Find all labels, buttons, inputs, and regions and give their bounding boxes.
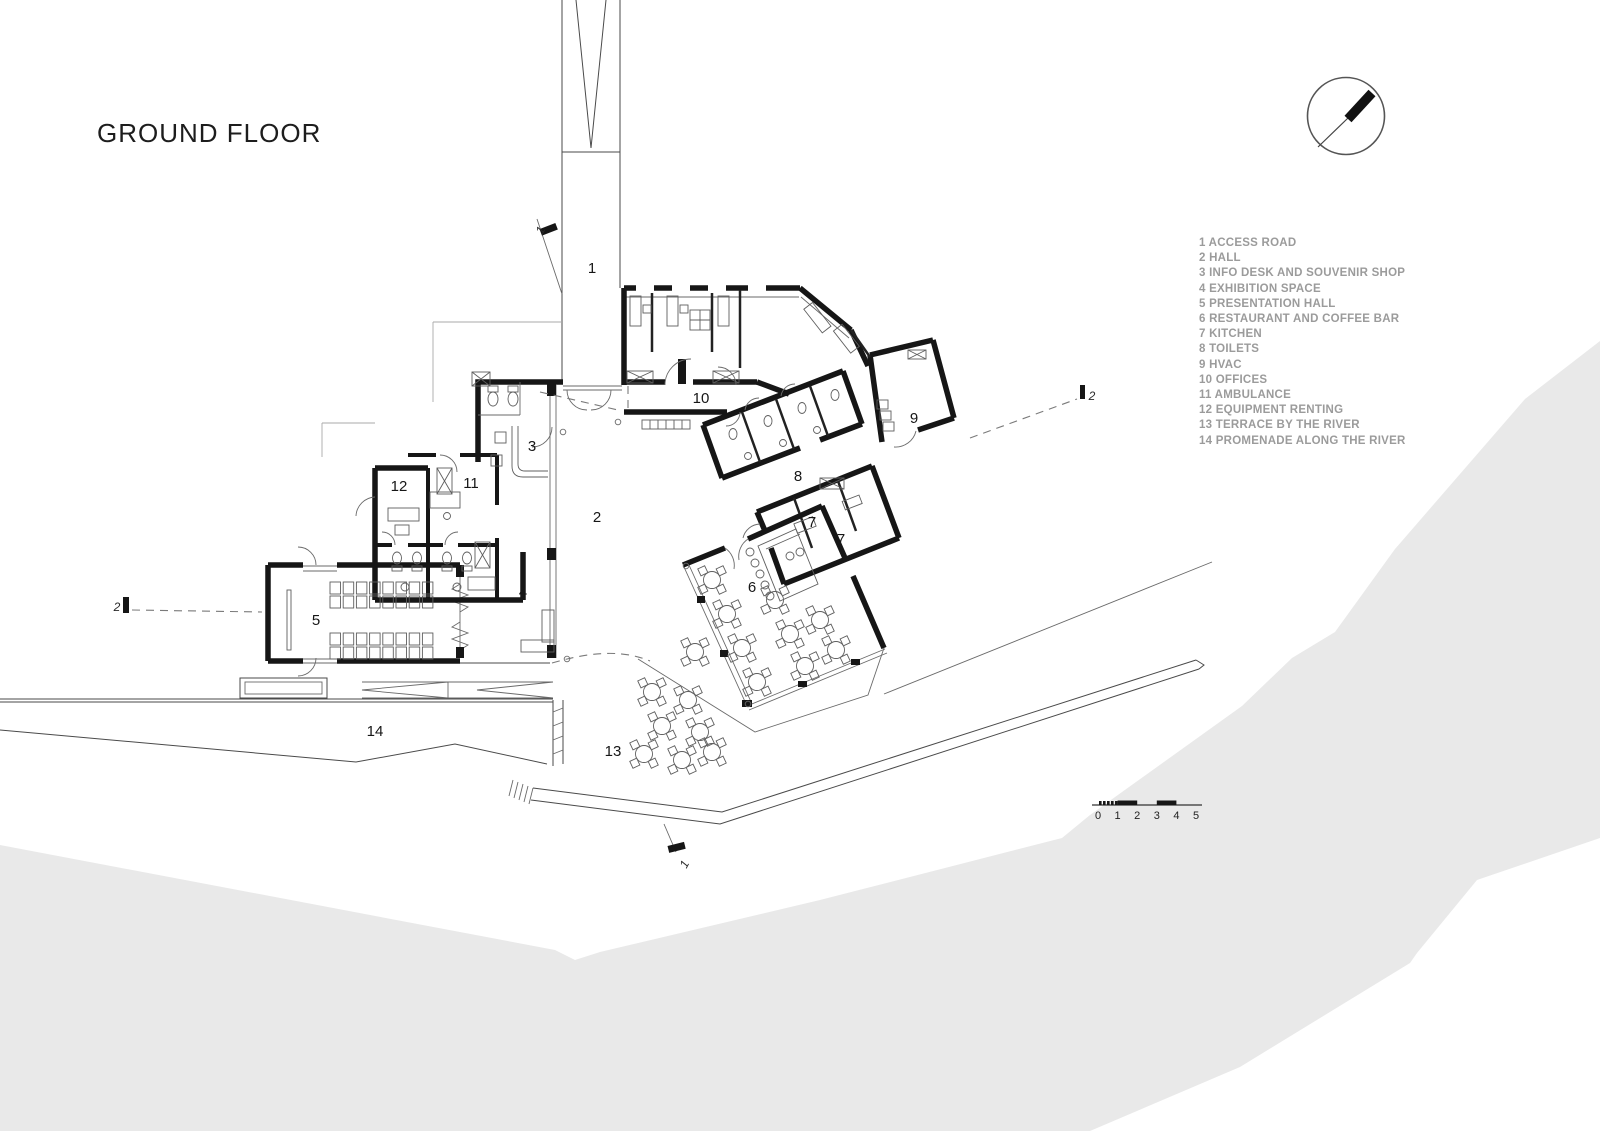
section-label: 2 — [113, 600, 121, 614]
section-label: 1 — [533, 224, 549, 236]
furniture — [287, 296, 926, 774]
room-number-labels: 12345677891011121314 — [312, 260, 918, 760]
legend-item: 4 EXHIBITION SPACE — [1199, 282, 1406, 297]
legend-item: 10 OFFICES — [1199, 373, 1406, 388]
room-number-label: 5 — [312, 612, 320, 629]
legend-item: 13 TERRACE BY THE RIVER — [1199, 418, 1406, 433]
restaurant-table — [806, 606, 834, 634]
presentation-seat — [370, 633, 381, 645]
scale-number: 1 — [1115, 810, 1121, 822]
presentation-seat — [422, 633, 433, 645]
scale-number: 3 — [1154, 810, 1160, 822]
scale-number: 0 — [1095, 810, 1101, 822]
legend-item: 2 HALL — [1199, 251, 1406, 266]
room-number-label: 2 — [593, 509, 601, 526]
legend-item: 3 INFO DESK AND SOUVENIR SHOP — [1199, 266, 1406, 281]
scale-number: 2 — [1134, 810, 1140, 822]
bar-stool — [761, 581, 769, 589]
room-number-label: 10 — [693, 390, 710, 407]
presentation-seat — [343, 582, 354, 594]
legend-item: 8 TOILETS — [1199, 342, 1406, 357]
presentation-seat — [343, 596, 354, 608]
room-number-label: 9 — [910, 410, 918, 427]
room-number-label: 4 — [519, 584, 527, 601]
drawing-sheet: 012345 12345677891011121314 1122 GROUND … — [0, 0, 1600, 1131]
legend-item: 11 AMBULANCE — [1199, 388, 1406, 403]
restaurant-table — [791, 652, 819, 680]
terrace-table — [698, 738, 726, 766]
presentation-seat — [409, 647, 420, 659]
scale-number: 5 — [1193, 810, 1199, 822]
restaurant-table — [713, 600, 741, 628]
section-label: 1 — [677, 858, 693, 870]
room-number-label: 12 — [391, 478, 408, 495]
presentation-seat — [409, 582, 420, 594]
river-area — [0, 341, 1600, 1131]
legend-item: 1 ACCESS ROAD — [1199, 236, 1406, 251]
room-number-label: 11 — [463, 475, 479, 492]
access-road — [562, 0, 620, 382]
legend-item: 5 PRESENTATION HALL — [1199, 297, 1406, 312]
presentation-seat — [330, 596, 341, 608]
presentation-seat — [396, 647, 407, 659]
presentation-seat — [409, 633, 420, 645]
legend-item: 7 KITCHEN — [1199, 327, 1406, 342]
terrace-table — [686, 718, 714, 746]
room-number-label: 13 — [605, 743, 622, 760]
door-arcs — [298, 359, 916, 676]
restaurant-table — [728, 634, 756, 662]
terrace-table — [668, 746, 696, 774]
building-walls-right — [624, 284, 954, 707]
legend-item: 12 EQUIPMENT RENTING — [1199, 403, 1406, 418]
presentation-seat — [422, 647, 433, 659]
terrace — [552, 648, 884, 732]
restaurant-table — [822, 636, 850, 664]
restaurant-table — [776, 620, 804, 648]
terrace-table — [630, 740, 658, 768]
restaurant-table — [698, 566, 726, 594]
legend-item: 6 RESTAURANT AND COFFEE BAR — [1199, 312, 1406, 327]
terrace-table — [648, 712, 676, 740]
room-number-label: 7 — [808, 514, 816, 531]
presentation-seat — [356, 582, 367, 594]
room-number-label: 6 — [748, 579, 756, 596]
presentation-seat — [356, 647, 367, 659]
floor-plan-drawing: 012345 12345677891011121314 1122 — [0, 0, 1600, 1131]
scale-number: 4 — [1173, 810, 1179, 822]
bar-stool — [746, 548, 754, 556]
presentation-seat — [356, 596, 367, 608]
section-label: 2 — [1088, 389, 1096, 403]
legend-item: 14 PROMENADE ALONG THE RIVER — [1199, 434, 1406, 449]
presentation-seat — [396, 633, 407, 645]
room-number-label: 8 — [794, 468, 802, 485]
presentation-seat — [343, 633, 354, 645]
room-number-label: 14 — [367, 723, 384, 740]
room-number-label: 7 — [837, 531, 845, 548]
presentation-seat — [370, 647, 381, 659]
presentation-seat — [383, 647, 394, 659]
window-walls — [303, 297, 887, 710]
bar-stool — [751, 559, 759, 567]
presentation-seat — [330, 647, 341, 659]
promenade — [0, 660, 1204, 824]
bar-stool — [756, 570, 764, 578]
presentation-seat — [356, 633, 367, 645]
presentation-seat — [343, 647, 354, 659]
restaurant-table — [761, 586, 789, 614]
presentation-seat — [383, 633, 394, 645]
drawing-title: GROUND FLOOR — [97, 118, 321, 149]
room-number-label: 1 — [588, 260, 596, 277]
legend-item: 9 HVAC — [1199, 358, 1406, 373]
presentation-seat — [330, 582, 341, 594]
terrace-table — [638, 678, 666, 706]
section-marker-labels: 1122 — [113, 224, 1096, 870]
room-legend: 1 ACCESS ROAD2 HALL3 INFO DESK AND SOUVE… — [1199, 236, 1406, 449]
presentation-seat — [330, 633, 341, 645]
presentation-seat — [383, 582, 394, 594]
terrace-table — [681, 638, 709, 666]
north-arrow-icon — [1308, 78, 1385, 155]
room-number-label: 3 — [528, 438, 536, 455]
